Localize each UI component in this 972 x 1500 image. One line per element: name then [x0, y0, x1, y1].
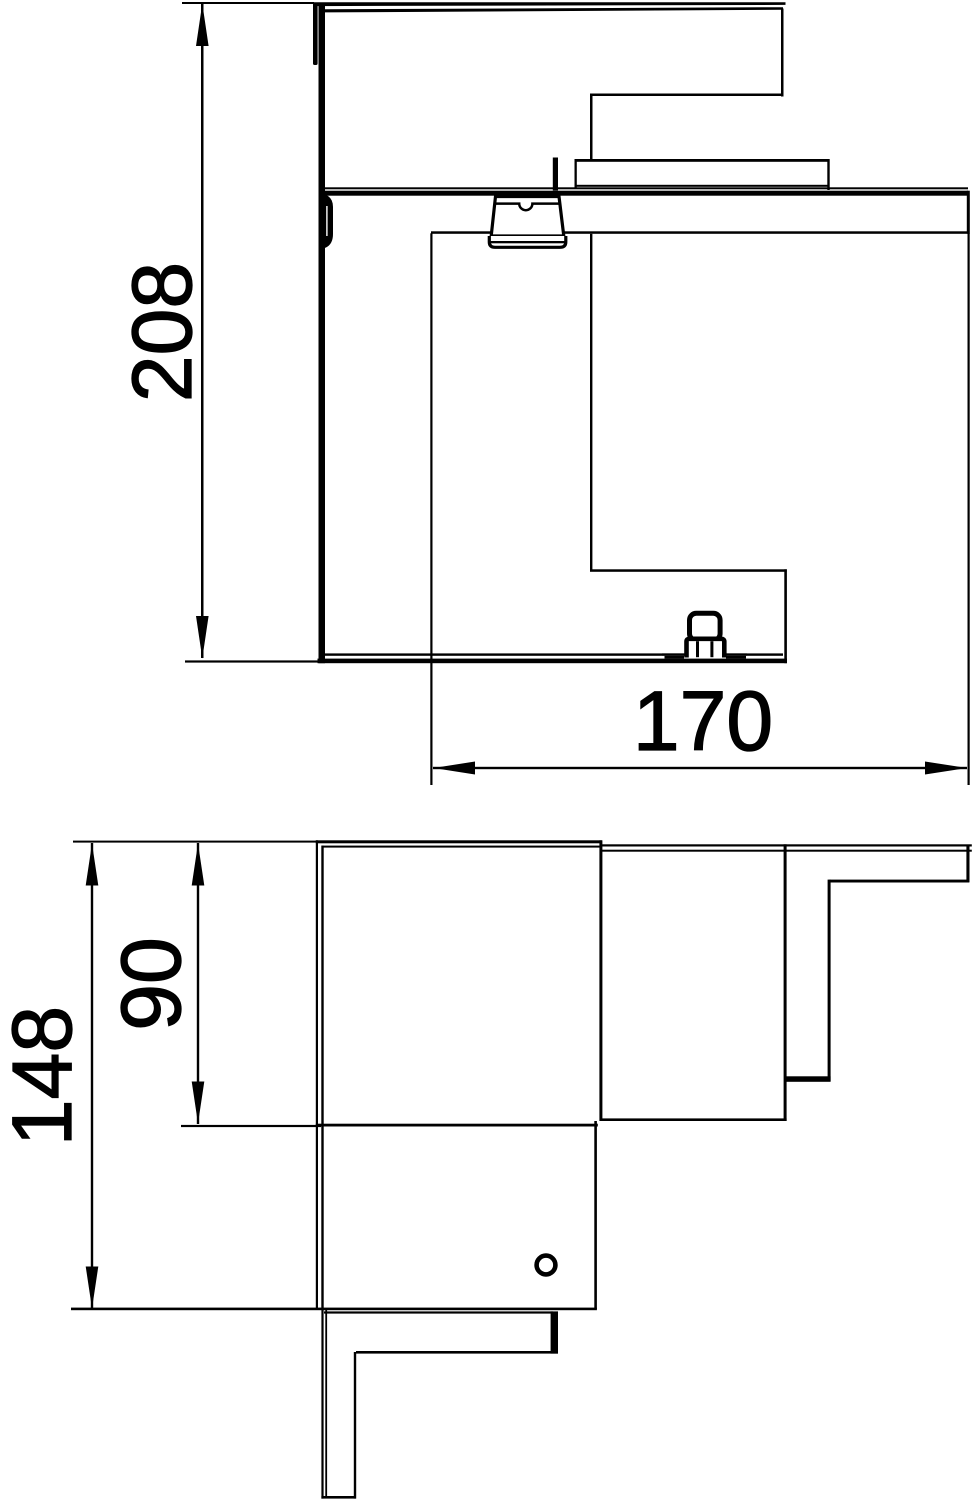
svg-text:170: 170	[633, 674, 773, 768]
svg-text:148: 148	[0, 1006, 89, 1146]
svg-text:208: 208	[115, 262, 209, 402]
svg-text:90: 90	[104, 937, 198, 1030]
